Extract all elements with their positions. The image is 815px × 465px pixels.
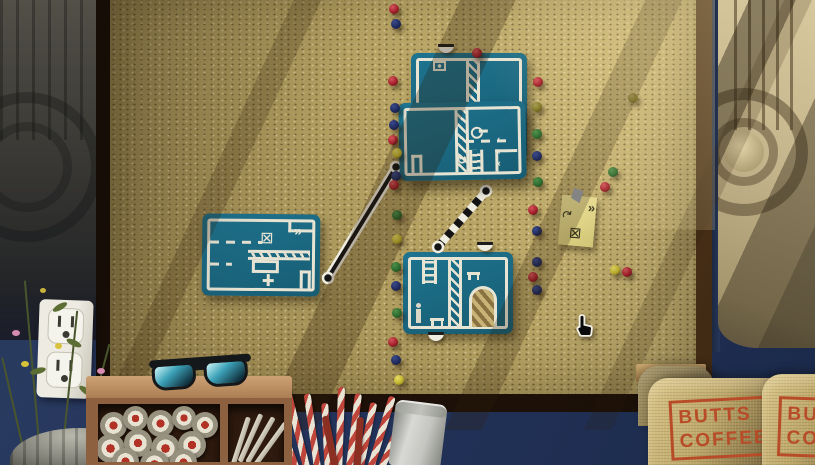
pin-green	[608, 167, 618, 177]
organizer-bin-papers	[228, 404, 284, 462]
paper-roll	[147, 410, 174, 437]
striped-stick	[335, 387, 345, 465]
door-icon	[300, 270, 311, 288]
coffee-bag-right: BUTTS COFFEE	[762, 374, 815, 465]
pin-red	[622, 267, 632, 277]
pin-red	[533, 77, 543, 87]
pin-blue	[390, 103, 400, 113]
sunglasses	[149, 351, 254, 398]
bench-icon	[467, 272, 480, 278]
coffee-crate: BUTTS COFFEE BUTTS COFFEE	[634, 360, 815, 465]
rotate-arrow-icon: ↻	[456, 153, 467, 166]
sunglasses-lens-left	[151, 361, 197, 391]
sticky-note[interactable]: ↷ » ⊠	[558, 195, 597, 248]
pin-green	[532, 129, 542, 139]
ladder-icon	[469, 150, 483, 174]
dashed-route	[210, 240, 262, 244]
pin-red	[600, 182, 610, 192]
key-icon	[471, 127, 489, 136]
pin-blue	[532, 226, 542, 236]
pin-green	[391, 262, 401, 272]
organizer-bin-rolls	[98, 404, 220, 462]
corkboard	[96, 0, 712, 412]
pin-red	[388, 76, 398, 86]
pin-olive	[628, 93, 638, 103]
fast-forward-icon: »	[587, 200, 594, 215]
chevron-left-icon: ‹	[497, 135, 501, 145]
cup	[388, 399, 448, 465]
coffee-bag-product: COFFEE	[679, 425, 769, 453]
level-card-bottom[interactable]	[403, 252, 513, 334]
ladder-icon	[422, 257, 437, 284]
wall-notch	[495, 149, 517, 171]
curved-arrow-icon: ↷	[559, 205, 577, 224]
level-card-left[interactable]: ⊠ »	[202, 213, 321, 296]
pin-olive	[532, 102, 542, 112]
outlet-ground-hole	[62, 331, 69, 338]
outlet-slot	[69, 360, 72, 371]
outlet-socket-bottom	[46, 351, 83, 388]
pillar-shadow	[718, 0, 815, 348]
pin-yellow	[392, 234, 402, 244]
pin-blue	[391, 19, 401, 29]
pin-blue	[532, 151, 542, 161]
pin-red	[472, 48, 482, 58]
crossed-box-icon: ⊠	[568, 223, 582, 242]
ornate-pillar-left	[0, 0, 100, 340]
pin-red	[389, 180, 399, 190]
crossed-box-icon: ⊠	[260, 231, 274, 247]
ornate-pillar-right	[718, 0, 815, 348]
pin-blue	[389, 120, 399, 130]
pin-red	[388, 135, 398, 145]
pin-red	[389, 4, 399, 14]
sunglasses-bridge	[193, 364, 205, 371]
pin-yellow	[610, 265, 620, 275]
pin-green	[392, 210, 402, 220]
game-scene: ‹ ‹ ‹ ↻ ⊠ » ↷ » ⊠	[0, 0, 815, 465]
hand-cursor-icon	[572, 313, 596, 341]
crate-icon	[252, 260, 279, 273]
outlet-slot	[56, 360, 59, 371]
coffee-bag-product: COFFEE	[786, 426, 815, 453]
agent-figure	[414, 303, 422, 324]
pillar-shadow	[0, 0, 100, 340]
outlet-socket-top	[47, 307, 84, 344]
pin-red	[528, 205, 538, 215]
camera-box-icon	[433, 61, 446, 71]
hatched-platform	[248, 250, 310, 261]
door-icon	[411, 155, 422, 173]
pin-yellow	[392, 148, 402, 158]
outlet-ground-hole	[61, 375, 68, 382]
coffee-bag-stamp: BUTTS COFFEE	[777, 396, 815, 459]
pin-blue	[532, 257, 542, 267]
sunglasses-lens-right	[203, 358, 249, 388]
pin-blue	[532, 285, 542, 295]
coffee-bag-brand: BUTTS	[787, 402, 815, 429]
paper-roll	[123, 406, 148, 431]
bench-icon	[430, 318, 444, 324]
level-card-selected[interactable]: ‹ ‹ ‹ ↻	[398, 101, 526, 181]
hatched-wall	[448, 260, 462, 326]
outlet-slot	[58, 316, 61, 327]
pin-green	[533, 177, 543, 187]
wall-step	[288, 220, 314, 232]
striped-sticks	[283, 396, 401, 465]
pin-red	[528, 272, 538, 282]
pin-red	[388, 337, 398, 347]
dashed-route	[210, 262, 232, 265]
pin-blue	[391, 281, 401, 291]
arched-door-icon	[469, 286, 497, 327]
flower	[21, 361, 29, 367]
pin-blue	[391, 355, 401, 365]
pin-green	[392, 308, 402, 318]
pin-yellow	[394, 375, 404, 385]
post-icon	[262, 274, 274, 286]
outlet-slot	[71, 316, 74, 327]
